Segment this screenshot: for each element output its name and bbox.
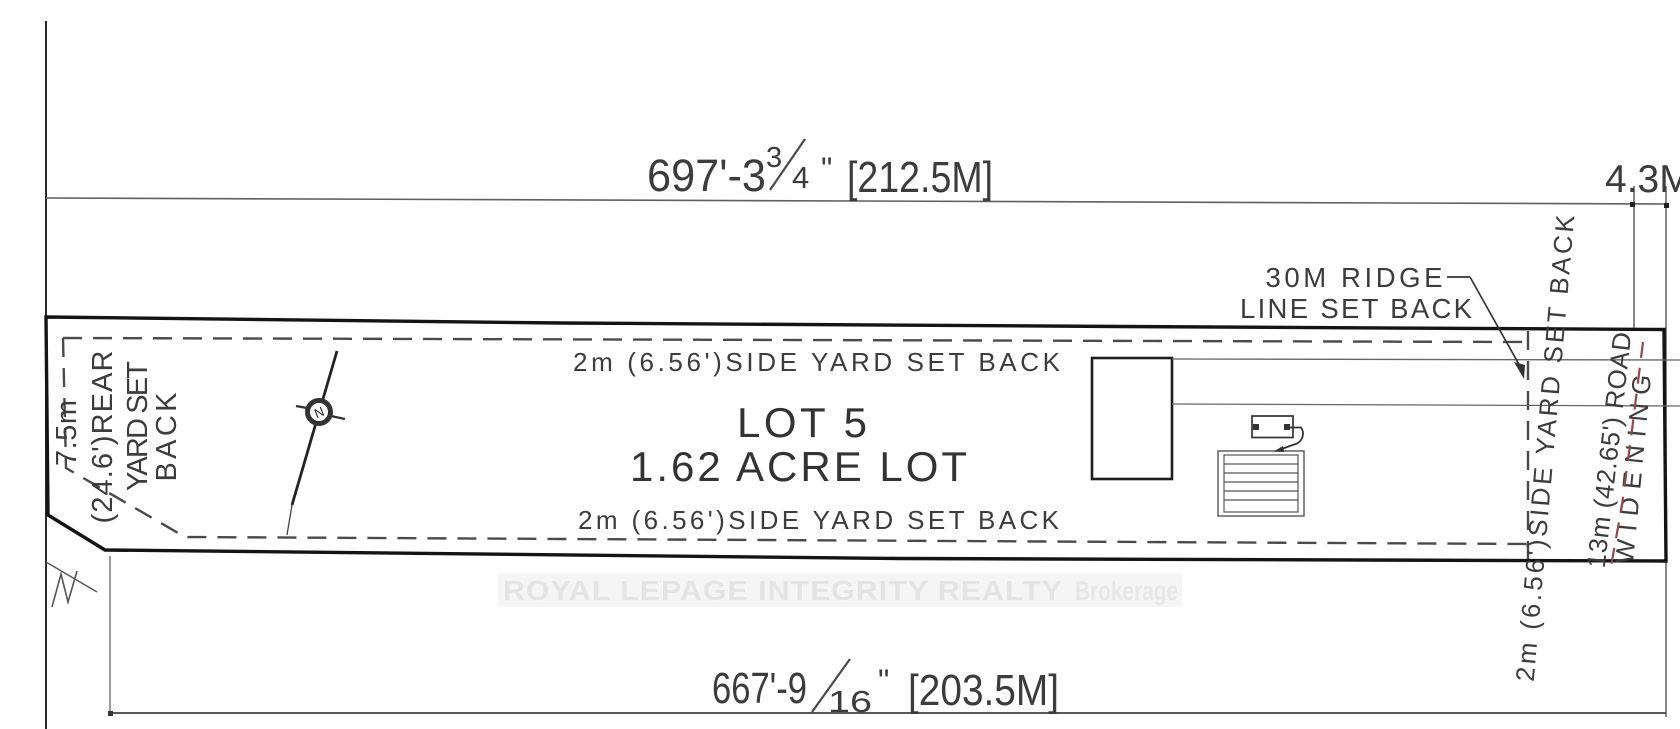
svg-text:3: 3 — [766, 142, 782, 174]
svg-text:697'-3: 697'-3 — [647, 150, 766, 201]
svg-text:4.3M: 4.3M — [1605, 158, 1680, 201]
svg-text:2m (6.56')SIDE YARD SET BACK: 2m (6.56')SIDE YARD SET BACK — [578, 505, 1060, 535]
svg-text:[203.5M]: [203.5M] — [908, 666, 1059, 715]
svg-text:Brokerage: Brokerage — [1075, 576, 1178, 606]
svg-text:": " — [821, 151, 832, 187]
svg-text:ROYAL LEPAGE INTEGRITY REALTY: ROYAL LEPAGE INTEGRITY REALTY — [503, 575, 1063, 606]
svg-text:BACK: BACK — [151, 392, 183, 482]
svg-text:667'-9: 667'-9 — [712, 664, 807, 713]
svg-text:7.5m: 7.5m — [51, 400, 83, 466]
svg-text:4: 4 — [792, 160, 809, 195]
svg-text:2m (6.56')SIDE YARD SET BACK: 2m (6.56')SIDE YARD SET BACK — [573, 347, 1061, 377]
svg-text:30M RIDGE: 30M RIDGE — [1266, 262, 1443, 293]
svg-text:1.62 ACRE LOT: 1.62 ACRE LOT — [630, 443, 970, 490]
svg-text:YARD SET: YARD SET — [122, 361, 154, 491]
svg-text:(24.6')REAR: (24.6')REAR — [87, 351, 119, 524]
svg-text:": " — [878, 663, 889, 699]
svg-text:LINE SET BACK: LINE SET BACK — [1240, 293, 1473, 324]
svg-text:16: 16 — [828, 684, 872, 719]
svg-text:LOT 5: LOT 5 — [737, 399, 867, 446]
svg-text:[212.5M]: [212.5M] — [847, 153, 993, 202]
